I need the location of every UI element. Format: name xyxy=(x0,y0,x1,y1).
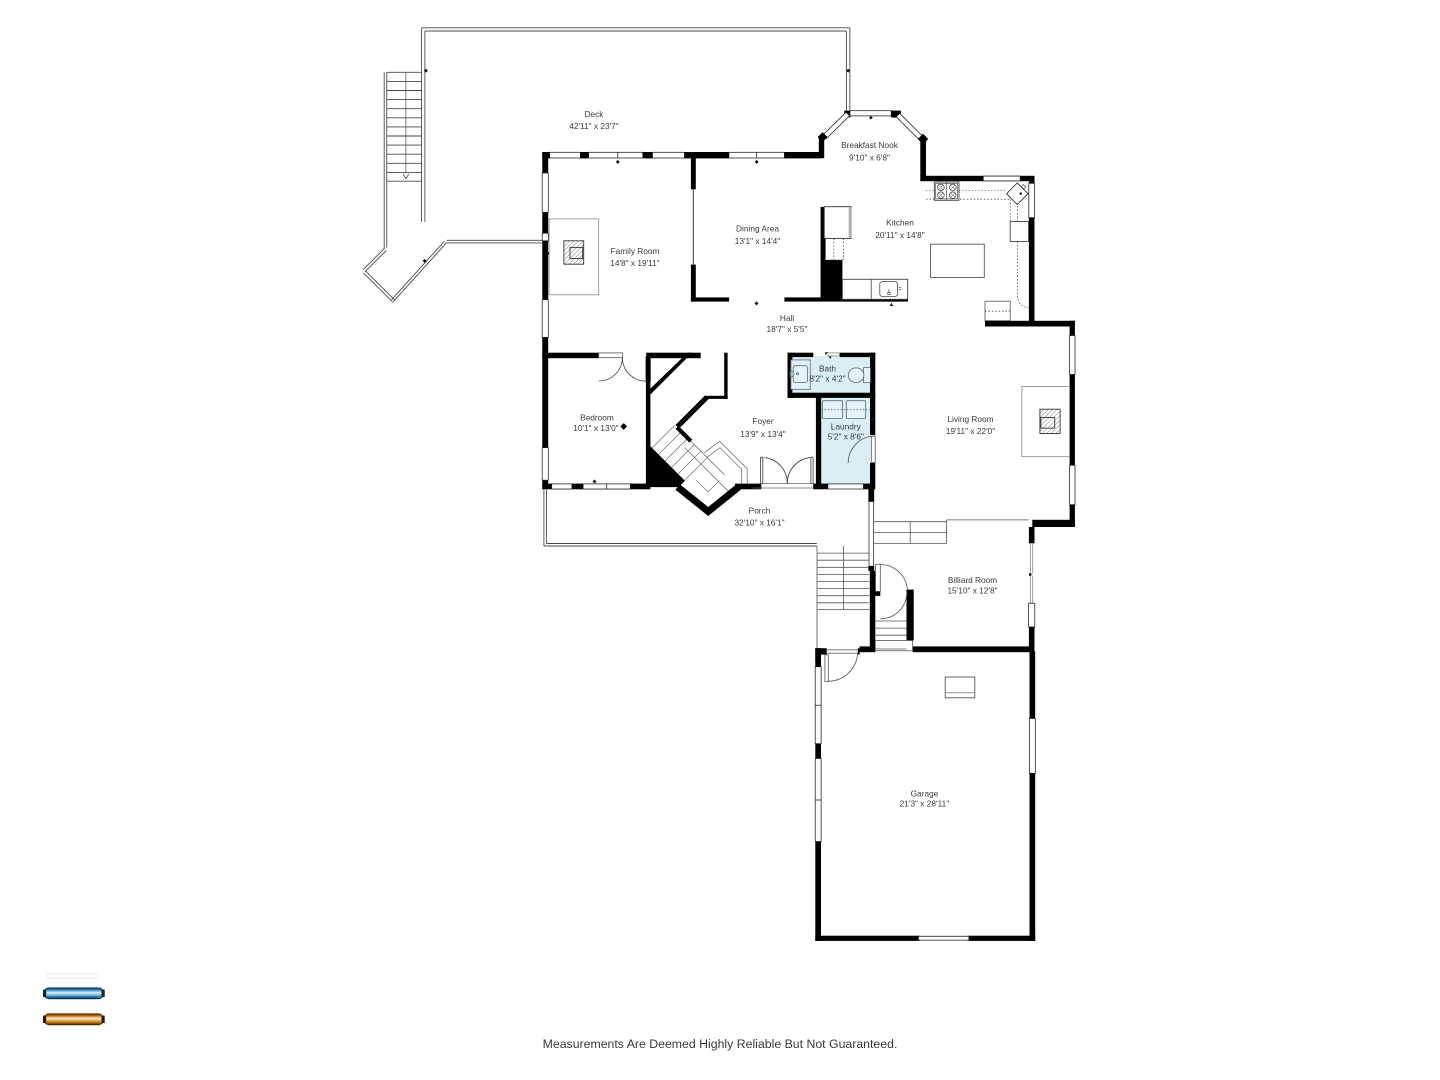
svg-text:Measurements Are Deemed Highly: Measurements Are Deemed Highly Reliable … xyxy=(543,1037,898,1051)
svg-text:13'1" x 14'4": 13'1" x 14'4" xyxy=(735,236,781,246)
svg-text:Kitchen: Kitchen xyxy=(886,218,914,228)
svg-text:Billiard Room: Billiard Room xyxy=(948,575,997,585)
svg-text:20'11" x 14'8": 20'11" x 14'8" xyxy=(875,230,925,240)
svg-text:10'1" x 13'0": 10'1" x 13'0" xyxy=(573,423,619,433)
svg-text:32'10" x 16'1": 32'10" x 16'1" xyxy=(734,517,784,527)
svg-text:14'8" x 19'11": 14'8" x 19'11" xyxy=(610,258,660,268)
svg-text:Breakfast Nook: Breakfast Nook xyxy=(841,140,899,150)
svg-text:8'2" x 4'2": 8'2" x 4'2" xyxy=(809,374,845,384)
svg-text:Hall: Hall xyxy=(780,313,794,323)
svg-text:19'11" x 22'0": 19'11" x 22'0" xyxy=(946,426,996,436)
svg-text:42'11" x 23'7": 42'11" x 23'7" xyxy=(569,121,619,131)
svg-text:5'2" x 8'6": 5'2" x 8'6" xyxy=(828,432,864,442)
svg-text:Family Room: Family Room xyxy=(611,246,660,256)
svg-text:Bath: Bath xyxy=(819,364,836,374)
svg-text:Dining Area: Dining Area xyxy=(736,224,779,234)
svg-text:21'3" x 28'11'': 21'3" x 28'11'' xyxy=(900,798,950,808)
svg-text:Laundry: Laundry xyxy=(831,422,862,432)
svg-text:Living Room: Living Room xyxy=(947,414,993,424)
svg-text:Bedroom: Bedroom xyxy=(580,413,614,423)
svg-text:18'7" x 5'5": 18'7" x 5'5" xyxy=(767,324,808,334)
svg-text:Foyer: Foyer xyxy=(752,416,773,426)
svg-text:Garage: Garage xyxy=(911,788,939,798)
svg-text:9'10" x 6'8": 9'10" x 6'8" xyxy=(849,152,890,162)
svg-text:Porch: Porch xyxy=(749,506,771,516)
svg-text:Deck: Deck xyxy=(585,109,605,119)
svg-text:15'10" x 12'8": 15'10" x 12'8" xyxy=(947,586,997,596)
svg-text:13'9" x 13'4": 13'9" x 13'4" xyxy=(740,429,786,439)
